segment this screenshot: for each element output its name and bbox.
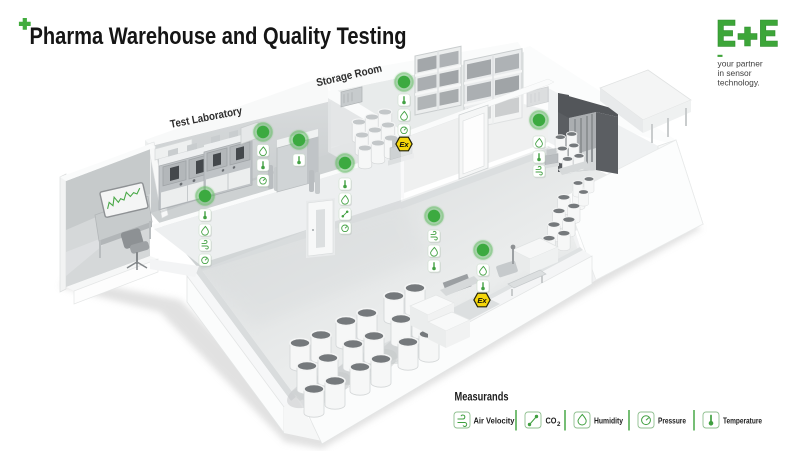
svg-text:Pressure: Pressure: [658, 416, 686, 426]
svg-text:technology.: technology.: [718, 78, 760, 88]
svg-text:your partner: your partner: [718, 59, 763, 69]
svg-text:Pharma Warehouse and Quality T: Pharma Warehouse and Quality Testing: [30, 23, 407, 50]
svg-text:Air Velocity: Air Velocity: [474, 416, 515, 426]
svg-text:Humidity: Humidity: [594, 416, 623, 426]
svg-text:2: 2: [557, 421, 561, 428]
svg-text:Temperature: Temperature: [723, 416, 762, 426]
svg-text:Measurands: Measurands: [455, 390, 509, 404]
svg-text:CO: CO: [546, 416, 557, 426]
svg-text:in sensor: in sensor: [718, 68, 752, 78]
